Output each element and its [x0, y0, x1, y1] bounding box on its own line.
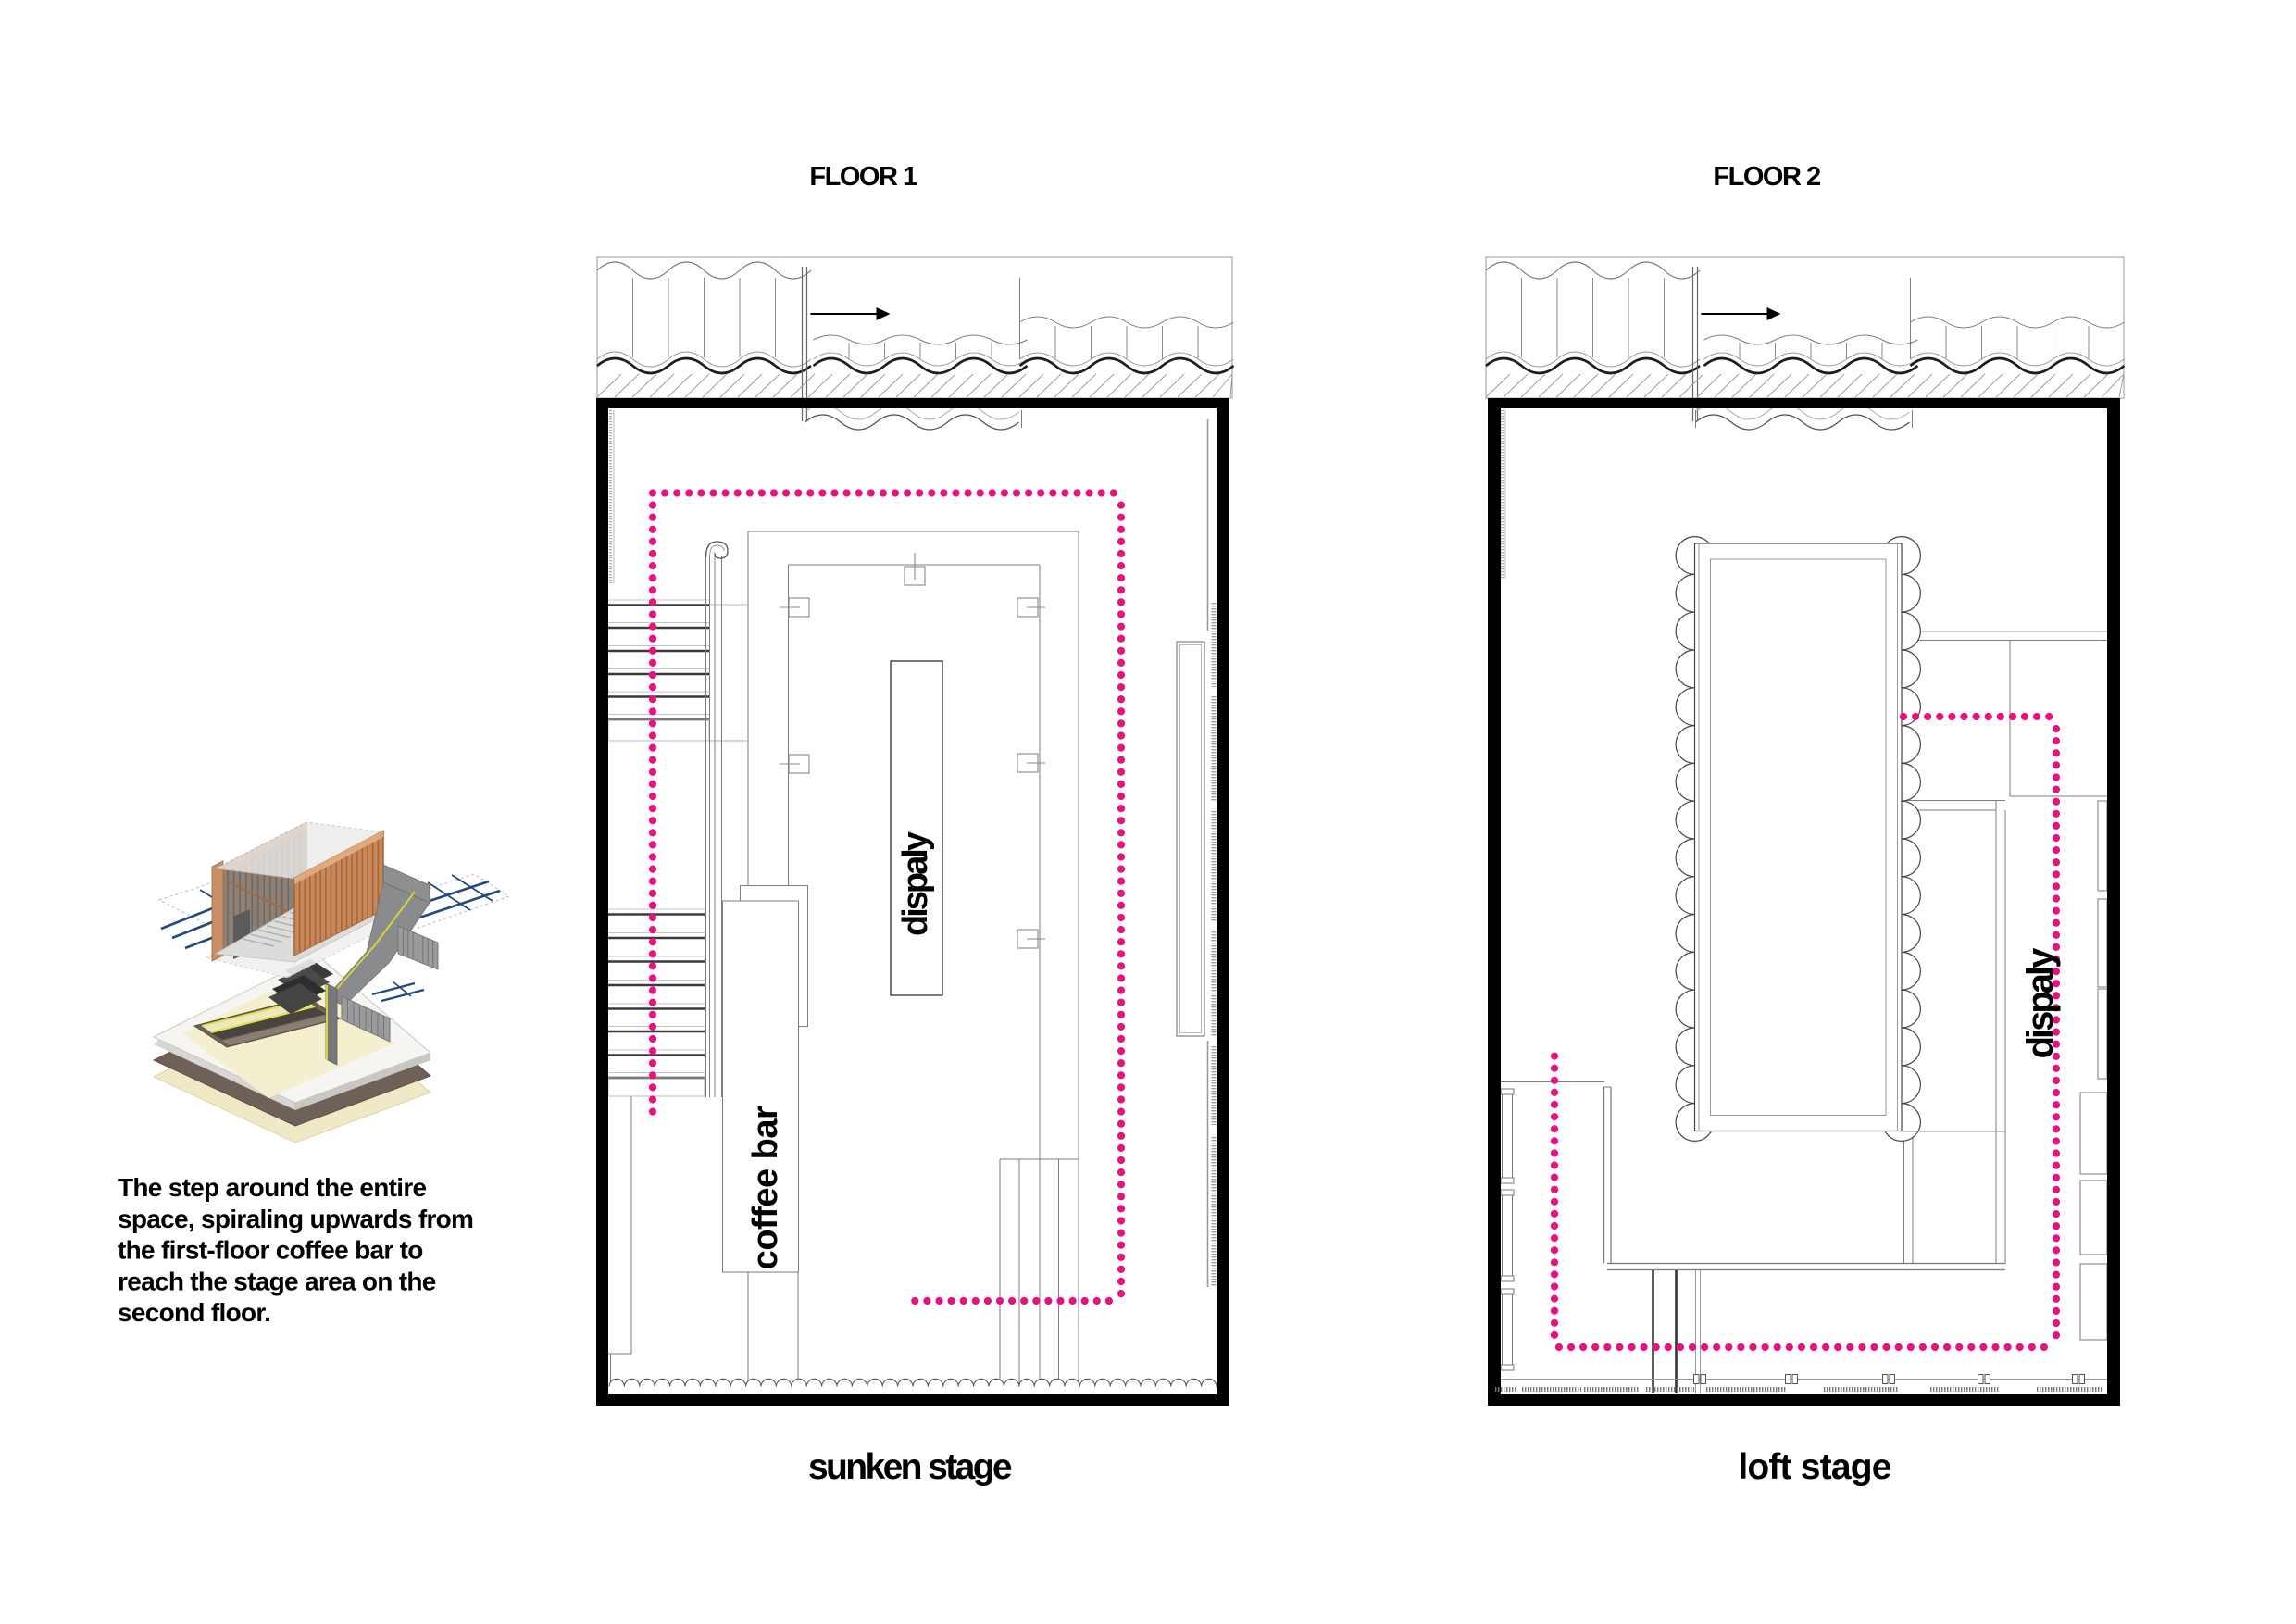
svg-text:dispaly: dispaly	[896, 831, 935, 936]
svg-text:loft stage: loft stage	[1738, 1447, 1890, 1487]
svg-text:coffee bar: coffee bar	[746, 1106, 785, 1269]
svg-text:FLOOR 1: FLOOR 1	[809, 162, 917, 192]
svg-text:sunken stage: sunken stage	[808, 1447, 1012, 1487]
svg-text:FLOOR 2: FLOOR 2	[1713, 162, 1820, 192]
svg-text:dispaly: dispaly	[2020, 947, 2061, 1059]
